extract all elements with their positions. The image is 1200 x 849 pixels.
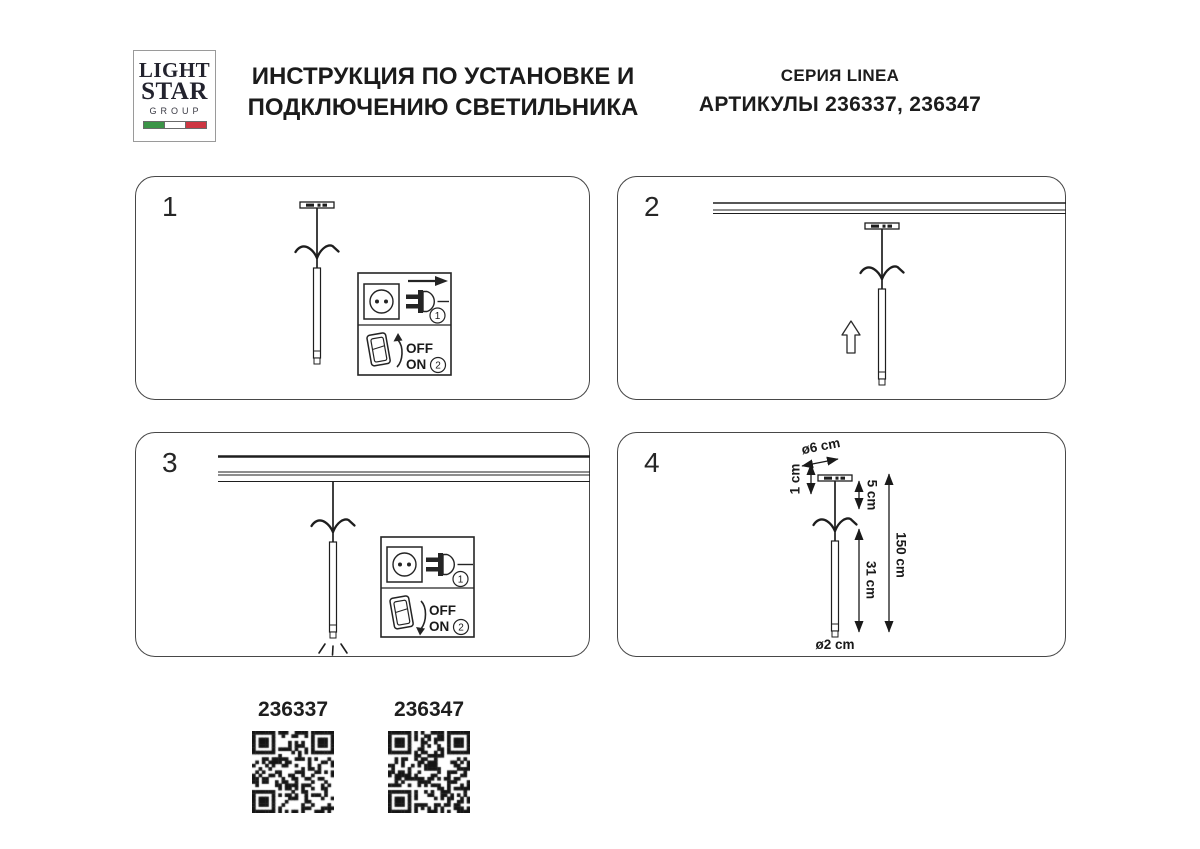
title-line-1: ИНСТРУКЦИЯ ПО УСТАНОВКЕ И [243, 61, 643, 92]
step2-circle-label: 2 [458, 623, 464, 634]
on-label: ON [406, 357, 426, 372]
flag-red-segment [186, 122, 206, 128]
step-panel-2: 2 [617, 176, 1066, 400]
step2-circle-label: 2 [435, 361, 441, 372]
off-label: OFF [429, 603, 456, 618]
step-panel-3: 3 [135, 432, 590, 657]
dim-stem-height: 5 cm [864, 480, 879, 511]
step3-drawing: 1 OFF ON 2 [136, 433, 591, 658]
instruction-sheet: LIGHT STAR GROUP ИНСТРУКЦИЯ ПО УСТАНОВКЕ… [0, 0, 1200, 849]
on-label: ON [429, 619, 449, 634]
step2-drawing [618, 177, 1067, 401]
italian-flag-bar [143, 121, 207, 129]
off-label: OFF [406, 341, 433, 356]
lightstar-logo: LIGHT STAR GROUP [133, 50, 216, 142]
socket-icon [364, 284, 399, 319]
light-rays-icon [319, 644, 347, 655]
step-panel-4: 4 ø6 cm 1 cm 5 cm 31 cm 150 cm [617, 432, 1066, 657]
qr-block-236337: 236337 [251, 698, 335, 813]
dim-total-height: 150 cm [893, 532, 908, 578]
logo-text-light: LIGHT [134, 60, 215, 80]
pendant-lamp-drawing [296, 202, 339, 364]
logo-text-group: GROUP [134, 106, 215, 116]
logo-text-star: STAR [134, 80, 215, 103]
page-title: ИНСТРУКЦИЯ ПО УСТАНОВКЕ И ПОДКЛЮЧЕНИЮ СВ… [243, 61, 643, 123]
pendant-lamp-drawing [312, 482, 355, 638]
push-up-arrow-icon [842, 321, 860, 353]
step1-circle-label: 1 [458, 575, 464, 586]
flag-green-segment [144, 122, 165, 128]
title-line-2: ПОДКЛЮЧЕНИЮ СВЕТИЛЬНИКА [243, 92, 643, 123]
qr-code-image [388, 731, 470, 813]
qr-label: 236337 [251, 698, 335, 722]
flag-white-segment [165, 122, 186, 128]
dim-canopy-height: 1 cm [788, 464, 803, 495]
article-numbers: АРТИКУЛЫ 236337, 236347 [660, 93, 1020, 117]
socket-icon [387, 547, 422, 582]
dim-tube-diameter: ø2 cm [815, 637, 854, 652]
pendant-lamp-drawing [861, 223, 904, 385]
track-lines [713, 203, 1066, 214]
series-info: СЕРИЯ LINEA АРТИКУЛЫ 236337, 236347 [660, 66, 1020, 117]
qr-label: 236347 [387, 698, 471, 722]
step1-circle-label: 1 [435, 311, 441, 322]
dim-tube-height: 31 cm [863, 561, 878, 599]
qr-code-image [252, 731, 334, 813]
pendant-lamp-drawing [814, 475, 857, 637]
inset-instructions: 1 OFF ON 2 [358, 273, 451, 375]
step-panel-1: 1 [135, 176, 590, 400]
track-lines [218, 457, 590, 482]
inset-instructions: 1 OFF ON 2 [381, 537, 474, 637]
dimensions-drawing: ø6 cm 1 cm 5 cm 31 cm 150 cm ø2 cm [618, 433, 1067, 658]
series-name: СЕРИЯ LINEA [660, 66, 1020, 86]
dim-canopy-diameter: ø6 cm [800, 435, 841, 457]
qr-block-236347: 236347 [387, 698, 471, 813]
step1-drawing: 1 OFF ON 2 [136, 177, 591, 401]
